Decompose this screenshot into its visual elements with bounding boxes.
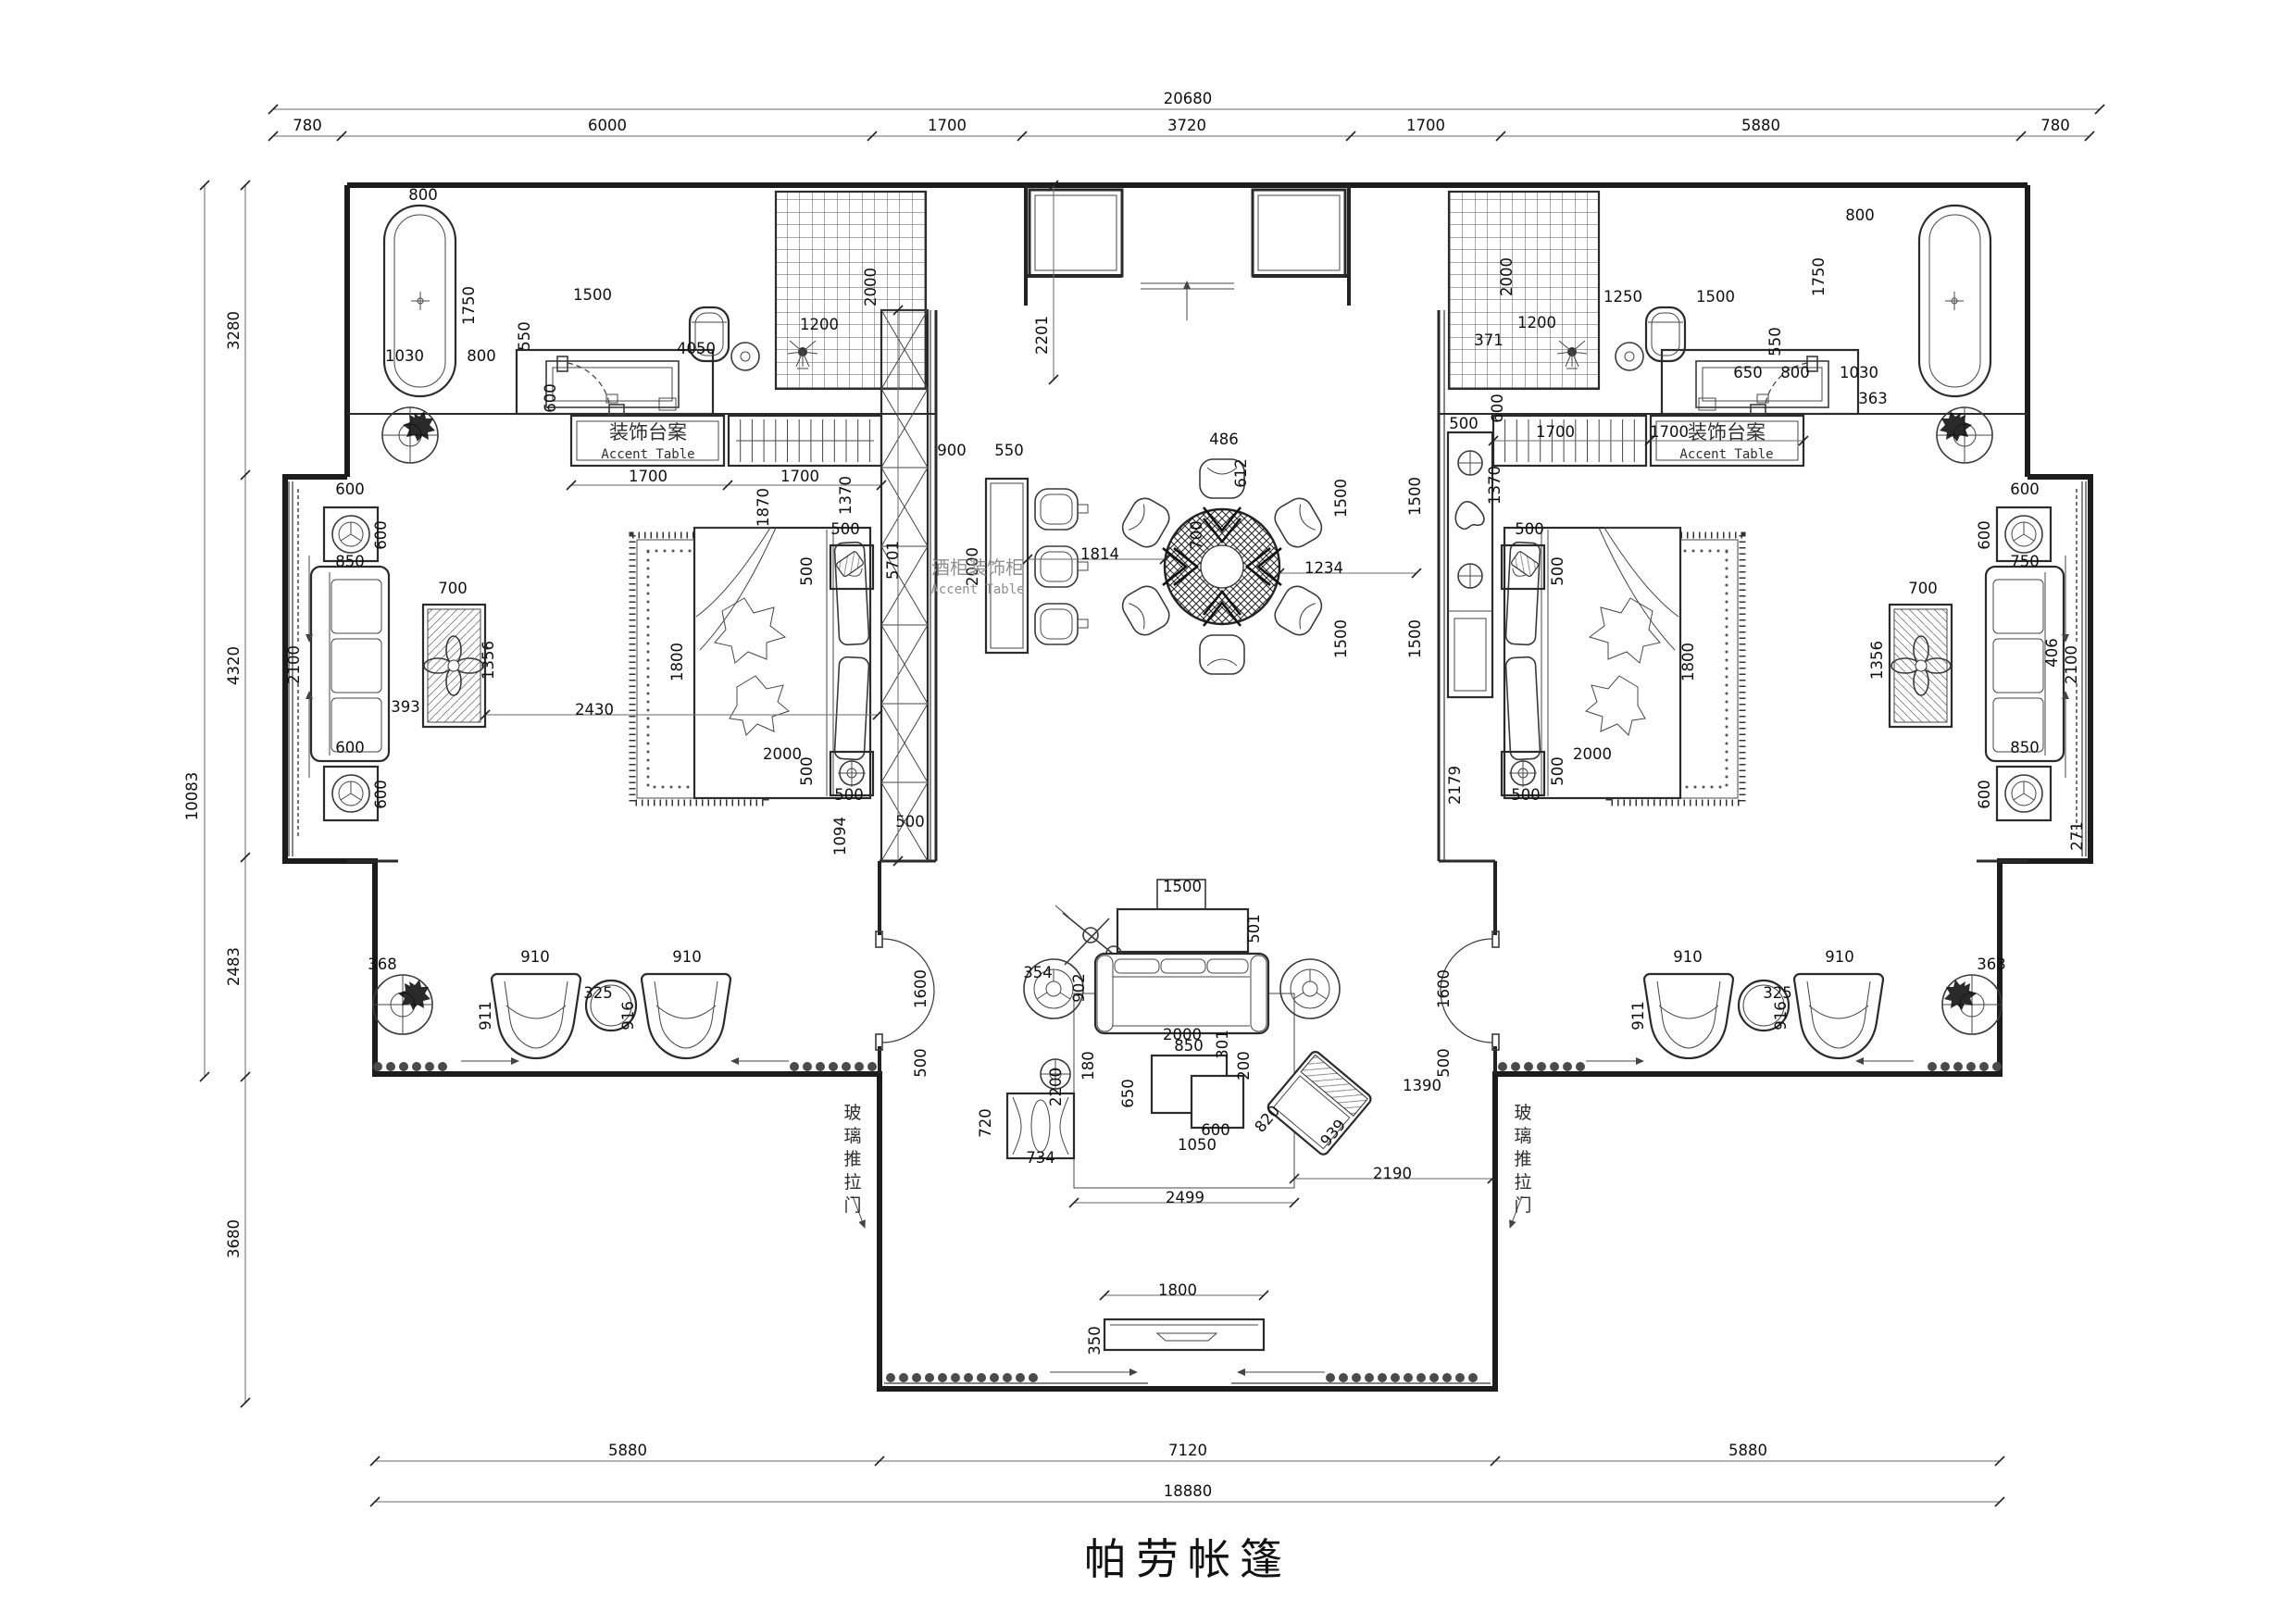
dim-label: 650 <box>1119 1079 1137 1108</box>
dim-label: 2000 <box>862 268 880 306</box>
dim-label: 780 <box>2040 117 2070 134</box>
dim-label: 5701 <box>884 541 902 580</box>
dim-label: 800 <box>408 186 438 204</box>
dim-label: 1250 <box>1603 288 1642 306</box>
dim-label: 600 <box>1489 394 1506 423</box>
dim-label: 700 <box>438 580 468 597</box>
dim-label: 5880 <box>608 1442 647 1459</box>
room-label: 玻 <box>1514 1103 1531 1123</box>
dining-chair <box>1118 581 1174 640</box>
hall-console <box>1104 1319 1264 1350</box>
room-label: 装饰台案 <box>1688 421 1766 443</box>
dim-label: 1750 <box>1810 257 1828 296</box>
drawer-cabinet <box>729 416 881 466</box>
dim-label: 1800 <box>668 643 686 681</box>
floor-plan-canvas: 2068078060001700372017005880780100833280… <box>0 0 2296 1624</box>
sofa <box>311 567 389 761</box>
dim-label: 900 <box>937 442 967 459</box>
dim-label: 600 <box>372 520 390 550</box>
room-label: 酒柜装饰柜 <box>931 556 1024 579</box>
dim-label: 1750 <box>460 286 478 325</box>
side-table-bottom <box>324 767 378 820</box>
dim-label: 2200 <box>1047 1068 1065 1106</box>
dim-label: 1390 <box>1403 1077 1441 1094</box>
dim-label: 18880 <box>1164 1482 1213 1500</box>
dim-label: 486 <box>1209 431 1239 448</box>
room-label: 门 <box>1514 1195 1531 1216</box>
hall-curtain <box>891 1372 1484 1378</box>
room-label: Accent Table <box>601 447 694 462</box>
dim-label: 910 <box>1673 948 1703 966</box>
dim-label: 850 <box>2010 739 2040 756</box>
dim-label: 850 <box>335 553 365 570</box>
dim-label: 1234 <box>1304 559 1343 577</box>
tub-chair <box>642 974 730 1058</box>
dim-label: 500 <box>1549 556 1566 586</box>
dim-label: 800 <box>467 347 496 365</box>
dim-label: 910 <box>1825 948 1854 966</box>
coffee-table-small <box>1192 1076 1243 1128</box>
fan-coil-icon <box>731 343 759 370</box>
dim-label: 1814 <box>1080 545 1119 563</box>
dim-label: 500 <box>1549 756 1566 786</box>
dim-label: 1200 <box>1517 314 1556 331</box>
room-label: 璃 <box>843 1126 861 1146</box>
dim-label: 750 <box>2010 553 2040 570</box>
dim-label: 550 <box>516 321 533 351</box>
room-label: 门 <box>843 1195 861 1216</box>
dim-label: 1500 <box>1406 619 1424 658</box>
dim-label: 600 <box>1976 780 1993 809</box>
dining-table <box>1163 507 1281 626</box>
dim-label: 325 <box>1763 984 1792 1002</box>
dim-label: 1700 <box>1536 423 1575 441</box>
side-lamp-right <box>1280 959 1340 1018</box>
dim-label: 500 <box>1435 1048 1453 1078</box>
dim-label: 1700 <box>1406 117 1445 134</box>
dim-label: 911 <box>477 1001 494 1031</box>
dim-label: 6000 <box>588 117 627 134</box>
dim-label: 501 <box>1245 914 1263 943</box>
console-chair <box>1035 604 1088 644</box>
dim-label: 180 <box>1079 1051 1097 1081</box>
dim-label: 1870 <box>755 488 772 527</box>
dim-label: 500 <box>798 556 816 586</box>
room-label: 璃 <box>1514 1126 1531 1146</box>
dim-label: 916 <box>619 1001 637 1031</box>
dining-chair <box>1200 635 1244 674</box>
potted-plant <box>373 975 432 1034</box>
dim-label: 2000 <box>763 745 802 763</box>
dining-chair <box>1270 581 1326 640</box>
dim-label: 363 <box>1858 390 1888 407</box>
dim-label: 3720 <box>1167 117 1206 134</box>
dim-label: 720 <box>977 1108 994 1138</box>
dim-label: 500 <box>1511 786 1541 804</box>
dim-label: 1500 <box>1332 619 1350 658</box>
dim-label: 1500 <box>1696 288 1735 306</box>
drawing-title: 帕劳帐篷 <box>1084 1534 1291 1584</box>
dim-label: 1370 <box>837 476 855 515</box>
dim-label: 4320 <box>225 646 243 685</box>
dim-label: 1356 <box>1868 641 1886 680</box>
dim-label: 500 <box>895 813 925 831</box>
dim-label: 800 <box>1780 364 1810 381</box>
dim-label: 500 <box>834 786 864 804</box>
dim-label: 1800 <box>1158 1281 1197 1299</box>
dim-label: 612 <box>1232 458 1250 488</box>
dim-label: 301 <box>1214 1030 1231 1059</box>
dim-label: 1600 <box>912 969 930 1008</box>
dim-label: 10083 <box>183 772 201 821</box>
dim-label: 500 <box>912 1048 930 1078</box>
dim-label: 600 <box>2010 481 2040 498</box>
dim-label: 7120 <box>1168 1442 1207 1459</box>
dim-label: 600 <box>335 481 365 498</box>
dim-label: 393 <box>391 698 420 716</box>
dining-chair <box>1270 493 1326 552</box>
dim-label: 1700 <box>780 468 819 485</box>
dim-label: 1700 <box>1650 423 1689 441</box>
dim-label: 2100 <box>285 645 303 684</box>
building-walls <box>285 185 2090 1389</box>
dim-label: 2000 <box>1573 745 1612 763</box>
room-label: 装饰台案 <box>609 421 687 443</box>
dining-area <box>986 459 1326 674</box>
dim-label: 5880 <box>1741 117 1780 134</box>
dim-label: 700 <box>1188 520 1205 550</box>
dim-label: 368 <box>368 956 397 973</box>
dim-label: 850 <box>1174 1037 1204 1055</box>
dim-label: 354 <box>1023 964 1053 981</box>
dim-label: 500 <box>830 520 860 538</box>
room-label: Accent Table <box>930 582 1024 597</box>
dim-label: 325 <box>583 984 613 1002</box>
dim-label: 1600 <box>1435 969 1453 1008</box>
entry-closets <box>1029 190 1345 320</box>
dim-label: 500 <box>1515 520 1544 538</box>
dim-label: 350 <box>1086 1326 1104 1355</box>
dim-label: 1356 <box>480 641 497 680</box>
dim-label: 780 <box>293 117 322 134</box>
dim-label: 1500 <box>573 286 612 304</box>
room-label: 玻 <box>843 1103 861 1123</box>
dim-label: 2100 <box>2063 645 2080 684</box>
dim-label: 2000 <box>1498 257 1516 296</box>
dining-chair <box>1118 493 1174 552</box>
dim-label: 2190 <box>1373 1165 1412 1182</box>
dim-label: 2179 <box>1446 766 1464 805</box>
dim-label: 1700 <box>928 117 967 134</box>
dim-label: 1200 <box>800 316 839 333</box>
dim-label: 5880 <box>1728 1442 1767 1459</box>
console-chair <box>1035 489 1088 530</box>
dimension-lines <box>200 105 2104 1506</box>
dim-label: 2483 <box>225 947 243 986</box>
dim-label: 1500 <box>1406 477 1424 516</box>
dim-label: 500 <box>798 756 816 786</box>
dim-label: 1500 <box>1332 479 1350 518</box>
dim-label: 4050 <box>677 340 716 357</box>
dim-label: 2201 <box>1033 316 1051 355</box>
room-label: 推 <box>843 1149 861 1169</box>
dim-label: 1800 <box>1679 643 1697 681</box>
room-label: 拉 <box>1514 1172 1531 1193</box>
dim-label: 1500 <box>1163 878 1202 895</box>
dim-label: 271 <box>2068 821 2086 851</box>
dim-label: 500 <box>1449 415 1479 432</box>
dim-label: 902 <box>1070 973 1088 1003</box>
dim-label: 600 <box>372 780 390 809</box>
bathtub <box>384 206 455 396</box>
wine-display-cabinet <box>881 310 928 861</box>
tub-chair <box>492 974 580 1058</box>
dim-label: 1700 <box>629 468 668 485</box>
dim-label: 2499 <box>1166 1189 1204 1206</box>
dim-label: 550 <box>1766 327 1784 356</box>
dim-label: 600 <box>1976 520 1993 550</box>
dim-label: 700 <box>1908 580 1938 597</box>
dim-label: 650 <box>1733 364 1763 381</box>
dim-label: 600 <box>335 739 365 756</box>
dimension-labels: 2068078060001700372017005880780100833280… <box>183 90 2086 1500</box>
dim-label: 1030 <box>385 347 424 365</box>
shower <box>776 192 926 389</box>
dim-label: 734 <box>1026 1149 1055 1167</box>
dim-label: 910 <box>672 948 702 966</box>
room-label: Accent Table <box>1679 447 1773 462</box>
room-label: 推 <box>1514 1149 1531 1169</box>
dim-label: 916 <box>1772 1001 1790 1031</box>
dim-label: 911 <box>1629 1001 1647 1031</box>
dim-label: 371 <box>1474 331 1504 349</box>
room-label: 拉 <box>843 1172 861 1193</box>
coffee-table <box>423 605 485 727</box>
dim-label: 1094 <box>831 817 849 856</box>
dim-label: 406 <box>2043 638 2061 668</box>
dim-label: 550 <box>994 442 1024 459</box>
dim-label: 200 <box>1235 1051 1253 1081</box>
drawing-sheet: 2068078060001700372017005880780100833280… <box>0 0 2296 1624</box>
dim-label: 3280 <box>225 311 243 350</box>
dim-label: 910 <box>520 948 550 966</box>
bath-door <box>557 356 624 415</box>
dim-label: 1030 <box>1840 364 1878 381</box>
dim-label: 3680 <box>225 1219 243 1258</box>
dim-label: 20680 <box>1164 90 1213 107</box>
dim-label: 1050 <box>1178 1136 1217 1154</box>
dim-label: 363 <box>1977 956 2006 973</box>
dim-label: 800 <box>1845 206 1875 224</box>
dim-label: 2430 <box>575 701 614 718</box>
potted-plant <box>382 407 438 463</box>
living-sofa <box>1095 954 1268 1033</box>
dim-label: 600 <box>542 383 559 413</box>
dim-label: 1370 <box>1486 466 1504 505</box>
